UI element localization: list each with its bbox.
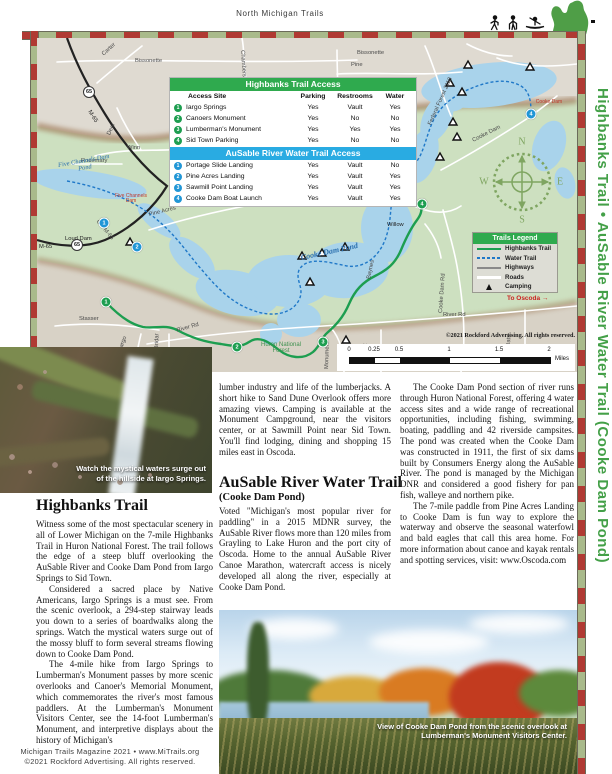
map-label: River Rd	[443, 312, 466, 318]
compass-w: W	[479, 177, 488, 188]
table-row: 2 Pine Acres Landing Yes Vault Yes	[170, 171, 416, 182]
footer-line2: ©2021 Rockford Advertising. All rights r…	[8, 757, 212, 767]
paragraph: Witness some of the most spectacular sce…	[36, 519, 213, 584]
map-label: Willow	[387, 222, 404, 228]
page-header-title: North Michigan Trails	[0, 9, 560, 18]
trail-map: N E W S Carter Bissonette Bissonette Pin…	[37, 38, 577, 372]
map-label: Five Channels Dam	[113, 194, 149, 205]
scale-unit: Miles	[555, 356, 569, 362]
footer-line1: Michigan Trails Magazine 2021 • www.MiTr…	[8, 747, 212, 757]
sidebar-vertical-title: Highbanks Trail • AuSable River Water Tr…	[585, 88, 611, 774]
right-column: The Cooke Dam Pond section of river runs…	[400, 382, 574, 566]
trail-marker-green: 2	[232, 342, 243, 353]
paragraph: The 7-mile paddle from Pine Acres Landin…	[400, 501, 574, 566]
table-row: 4 Cooke Dam Boat Launch Yes Vault Yes	[170, 193, 416, 204]
trail-access-tables: Highbanks Trail Access Access Site Parki…	[170, 78, 416, 206]
map-label: Winn	[127, 145, 140, 151]
roads-swatch	[477, 276, 501, 279]
m65-route-shield: 65	[71, 239, 83, 251]
scale-bar-segments	[349, 357, 551, 364]
paragraph: lumber industry and life of the lumberja…	[219, 382, 391, 458]
table-row: 1 Portage Slide Landing Yes Vault No	[170, 160, 416, 171]
map-label: Huron National Forest	[255, 342, 307, 355]
legend-item: Camping	[473, 282, 557, 292]
table-header-row: Access Site Parking Restrooms Water	[170, 91, 416, 102]
map-label: Bissonette	[357, 50, 384, 56]
trails-legend: Trails Legend Highbanks Trail Water Trai…	[473, 233, 557, 292]
map-label: M-65	[39, 244, 52, 250]
ausable-column: Voted "Michigan's most popular river for…	[219, 506, 391, 592]
magazine-page: North Michigan Trails Hi	[0, 0, 612, 774]
map-label: Bissonette	[135, 58, 162, 64]
map-copyright: ©2021 Rockford Advertising. All rights r…	[337, 332, 575, 339]
pine-tree	[247, 622, 269, 732]
table-row: 4 Sid Town Parking Yes No No	[170, 135, 416, 146]
water-marker-blue: 2	[132, 242, 143, 253]
trail-marker-green: 3	[318, 337, 329, 348]
map-label: Stasser	[79, 316, 99, 322]
ausable-heading: AuSable River Water Trail	[219, 474, 402, 492]
paragraph: The Cooke Dam Pond section of river runs…	[400, 382, 574, 501]
compass-s: S	[519, 215, 525, 226]
compass-n: N	[518, 137, 525, 148]
middle-column: lumber industry and life of the lumberja…	[219, 382, 391, 458]
photo-caption: View of Cooke Dam Pond from the scenic o…	[377, 722, 567, 741]
photo-caption: Watch the mystical waters surge out of t…	[74, 464, 206, 483]
hiker-icon	[487, 15, 502, 31]
trail-marker-green: 4	[417, 199, 428, 210]
activity-icons	[487, 15, 545, 31]
ausable-access-table-title: AuSable River Water Trail Access	[170, 147, 416, 160]
legend-item: Roads	[473, 273, 557, 283]
cooke-dam-pond-photo: View of Cooke Dam Pond from the scenic o…	[219, 610, 577, 774]
table-row: 1 Iargo Springs Yes Vault Yes	[170, 102, 416, 113]
legend-item: Highways	[473, 263, 557, 273]
water-trail-swatch	[477, 257, 501, 259]
paragraph: Voted "Michigan's most popular river for…	[219, 506, 391, 592]
page-footer: Michigan Trails Magazine 2021 • www.MiTr…	[8, 747, 212, 767]
legend-item: Highbanks Trail	[473, 244, 557, 254]
highways-swatch	[477, 267, 501, 269]
kayaker-icon	[525, 15, 545, 31]
ausable-subheading: (Cooke Dam Pond)	[219, 492, 305, 503]
map-label: Cooke Dam	[535, 100, 563, 105]
water-marker-blue: 1	[99, 218, 110, 229]
m65-route-shield: 65	[83, 86, 95, 98]
table-row: 2 Canoers Monument Yes No No	[170, 113, 416, 124]
water-marker-blue: 4	[526, 109, 537, 120]
map-label: Pine	[351, 62, 363, 68]
legend-item: Water Trail	[473, 254, 557, 264]
table-row: 3 Lumberman's Monument Yes Yes Yes	[170, 124, 416, 135]
snowshoer-icon	[506, 15, 521, 31]
iargo-springs-photo: Watch the mystical waters surge out of t…	[0, 347, 212, 493]
compass-e: E	[557, 177, 563, 188]
legend-title: Trails Legend	[473, 233, 557, 244]
table-row: 3 Sawmill Point Landing Yes Vault Yes	[170, 182, 416, 193]
paragraph: The 4-mile hike from Iargo Springs to Lu…	[36, 659, 213, 745]
scale-bar: 0 0.25 0.5 1 1.5 2 Miles	[337, 344, 575, 371]
highbanks-heading: Highbanks Trail	[36, 497, 148, 515]
camping-icon	[477, 284, 501, 290]
highbanks-access-table-title: Highbanks Trail Access	[170, 78, 416, 91]
highbanks-trail-swatch	[477, 248, 501, 250]
trail-marker-green: 1	[101, 297, 112, 308]
highbanks-column: Witness some of the most spectacular sce…	[36, 519, 213, 746]
paragraph: Considered a sacred place by Native Amer…	[36, 584, 213, 660]
to-oscoda-label: To Oscoda →	[507, 296, 548, 303]
